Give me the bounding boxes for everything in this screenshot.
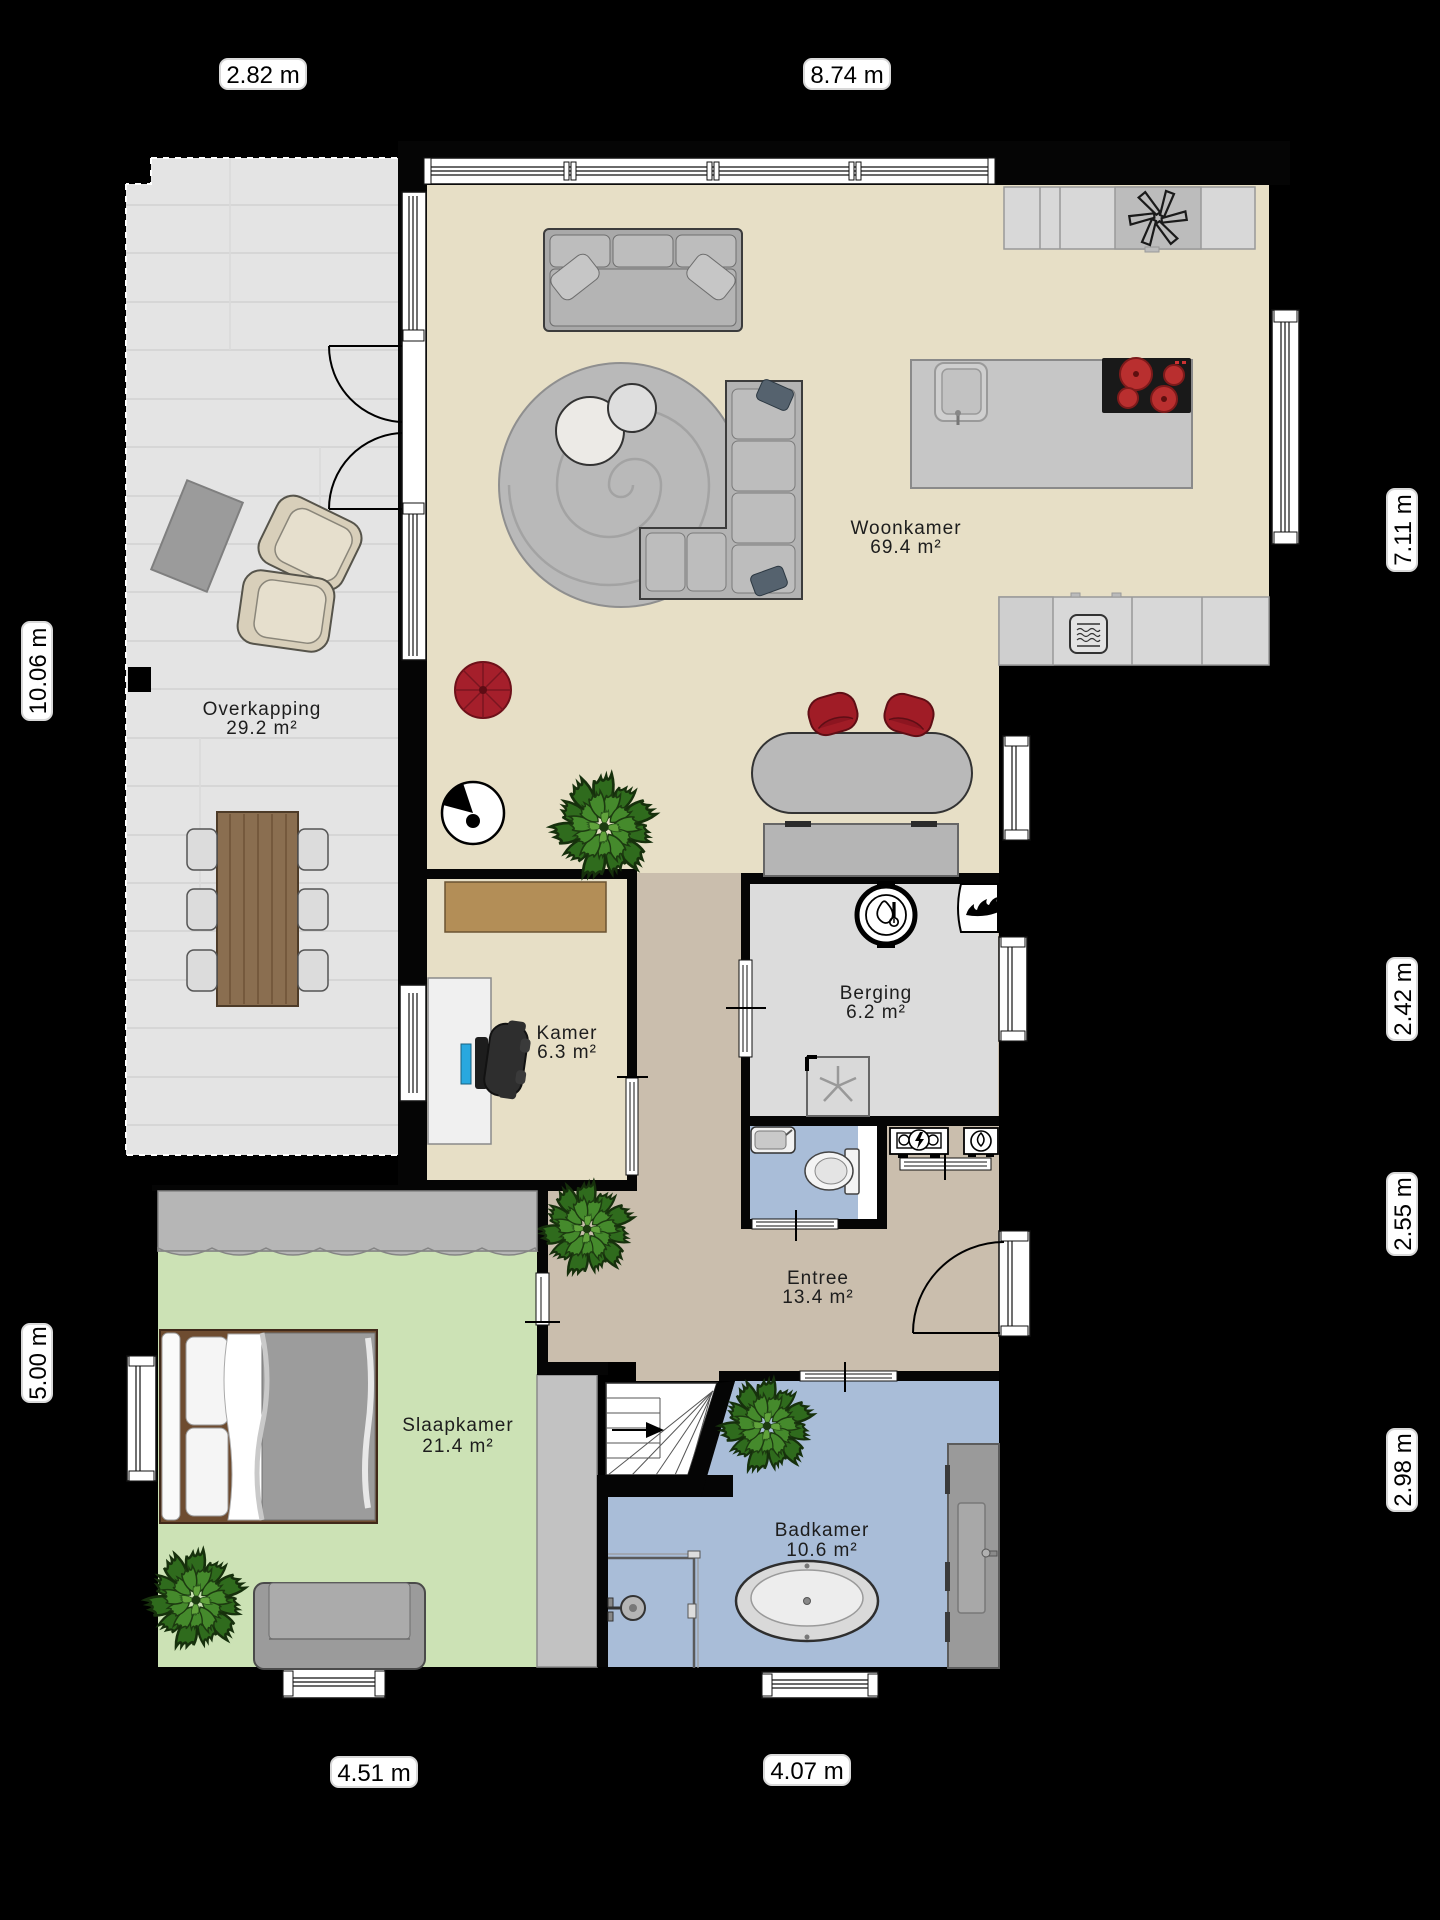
svg-text:Berging: Berging (840, 983, 913, 1004)
svg-text:13.4 m²: 13.4 m² (782, 1287, 853, 1308)
svg-text:2.42 m: 2.42 m (1390, 962, 1417, 1035)
svg-text:Entree: Entree (787, 1268, 849, 1289)
svg-text:69.4 m²: 69.4 m² (870, 537, 941, 558)
svg-text:21.4 m²: 21.4 m² (422, 1436, 493, 1457)
svg-text:6.3 m²: 6.3 m² (537, 1042, 597, 1063)
svg-text:2.98 m: 2.98 m (1390, 1433, 1417, 1506)
svg-text:4.51 m: 4.51 m (337, 1760, 410, 1787)
svg-text:Woonkamer: Woonkamer (850, 518, 961, 539)
svg-text:4.07 m: 4.07 m (770, 1758, 843, 1785)
svg-text:8.74 m: 8.74 m (810, 62, 883, 89)
svg-text:7.11 m: 7.11 m (1390, 494, 1417, 566)
svg-text:10.6 m²: 10.6 m² (786, 1540, 857, 1561)
svg-text:10.06 m: 10.06 m (25, 628, 52, 715)
svg-text:Badkamer: Badkamer (775, 1520, 870, 1541)
svg-text:Slaapkamer: Slaapkamer (402, 1415, 513, 1436)
svg-text:29.2 m²: 29.2 m² (226, 718, 297, 739)
svg-text:Overkapping: Overkapping (203, 699, 322, 720)
svg-text:Kamer: Kamer (537, 1023, 598, 1044)
svg-text:6.2 m²: 6.2 m² (846, 1002, 906, 1023)
svg-text:2.82 m: 2.82 m (226, 62, 299, 89)
svg-text:2.55 m: 2.55 m (1390, 1177, 1417, 1250)
svg-text:5.00 m: 5.00 m (25, 1326, 52, 1399)
